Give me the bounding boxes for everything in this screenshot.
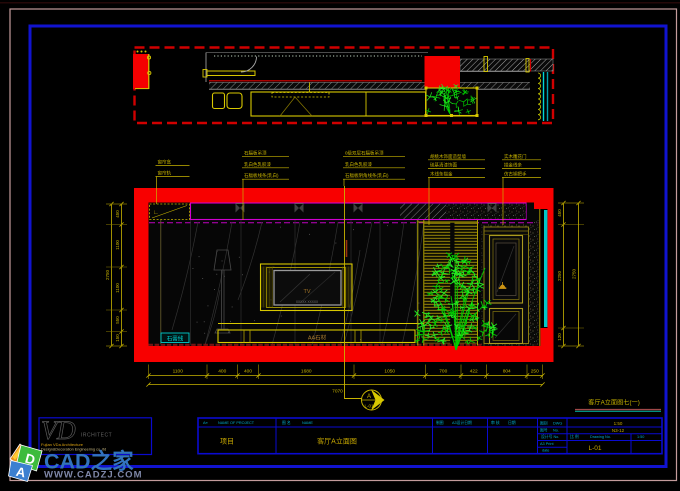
svg-text:450: 450 xyxy=(115,210,120,218)
svg-text:0级双层石腷板吊顶: 0级双层石腷板吊顶 xyxy=(345,149,384,156)
svg-text:石腷板线条(乳白): 石腷板线条(乳白) xyxy=(244,172,279,179)
svg-text:1100: 1100 xyxy=(173,369,184,375)
svg-text:1100: 1100 xyxy=(115,283,120,293)
svg-text:A: A xyxy=(367,394,371,400)
svg-text:DWG: DWG xyxy=(553,422,562,426)
svg-text:A≡: A≡ xyxy=(203,421,209,425)
svg-text:date: date xyxy=(542,449,549,453)
svg-text:客厅A立面图: 客厅A立面图 xyxy=(317,437,357,446)
svg-text:日期: 日期 xyxy=(508,420,516,425)
svg-text:木线条描金: 木线条描金 xyxy=(430,171,453,178)
svg-text:∟: ∟ xyxy=(153,210,159,216)
svg-text:550: 550 xyxy=(115,316,120,324)
svg-text:硫基清漆饰面: 硫基清漆饰面 xyxy=(430,162,457,169)
svg-text:乳白色乳胶漆: 乳白色乳胶漆 xyxy=(244,161,271,168)
svg-text:AA石材: AA石材 xyxy=(308,334,327,342)
svg-text:1050: 1050 xyxy=(384,369,395,375)
svg-text:150: 150 xyxy=(115,334,120,342)
svg-text:1:50: 1:50 xyxy=(637,435,644,439)
svg-text:仿古铜把手: 仿古铜把手 xyxy=(504,171,527,178)
svg-text:250: 250 xyxy=(531,369,539,375)
svg-text:804: 804 xyxy=(503,369,511,375)
svg-text:图别: 图别 xyxy=(540,421,548,426)
svg-text:120: 120 xyxy=(557,333,562,341)
svg-text:描金线条: 描金线条 xyxy=(504,162,522,169)
svg-text:客厅A立面图七(一): 客厅A立面图七(一) xyxy=(588,399,640,407)
svg-text:图号: 图号 xyxy=(540,427,548,432)
svg-text:项目: 项目 xyxy=(220,438,234,446)
svg-text:实木雕花门: 实木雕花门 xyxy=(504,153,527,160)
svg-text:IRCHITECT: IRCHITECT xyxy=(81,433,112,439)
svg-text:设计号 No.: 设计号 No. xyxy=(541,434,559,439)
svg-text:2250: 2250 xyxy=(557,270,562,281)
svg-text:1680: 1680 xyxy=(301,369,312,375)
svg-text:石膏线: 石膏线 xyxy=(167,335,184,343)
svg-text:石腷板吊顶: 石腷板吊顶 xyxy=(244,149,267,156)
svg-text:胡桃木饰面造型墙: 胡桃木饰面造型墙 xyxy=(430,153,466,160)
svg-text:400: 400 xyxy=(244,369,252,375)
svg-text:N3-12: N3-12 xyxy=(612,428,625,433)
svg-text:WWW.CADZJ.COM: WWW.CADZJ.COM xyxy=(44,470,143,481)
svg-text:450: 450 xyxy=(557,209,562,217)
svg-text:石腷板阴角线条(乳白): 石腷板阴角线条(乳白) xyxy=(345,172,389,179)
svg-text:图 名: 图 名 xyxy=(282,420,291,425)
svg-text:审 核: 审 核 xyxy=(491,420,500,425)
svg-text:制图: 制图 xyxy=(436,420,444,425)
svg-text:422: 422 xyxy=(470,369,478,375)
svg-text:No.: No. xyxy=(553,428,559,432)
svg-text:TV: TV xyxy=(303,289,310,295)
svg-text:NAME OF PROJECT: NAME OF PROJECT xyxy=(218,421,255,425)
svg-text:L-01: L-01 xyxy=(364,404,374,409)
svg-text:NAME: NAME xyxy=(302,421,313,425)
svg-text:7070: 7070 xyxy=(332,389,343,395)
svg-text:VD: VD xyxy=(41,416,76,445)
svg-text:2750: 2750 xyxy=(572,268,577,279)
svg-text:1100: 1100 xyxy=(115,240,120,250)
svg-text:2750: 2750 xyxy=(105,269,110,280)
svg-text:A3设计日期: A3设计日期 xyxy=(452,420,472,425)
svg-text:1:50: 1:50 xyxy=(614,421,623,426)
svg-text:窗帘盒: 窗帘盒 xyxy=(158,159,172,166)
svg-text:窗帘轨: 窗帘轨 xyxy=(158,170,172,177)
svg-text:Fujian VDa Architecture: Fujian VDa Architecture xyxy=(41,442,84,447)
svg-text:700: 700 xyxy=(439,369,447,375)
svg-text:Drawing No.: Drawing No. xyxy=(590,435,611,439)
svg-text:乳白色乳胶漆: 乳白色乳胶漆 xyxy=(345,161,372,168)
svg-text:400: 400 xyxy=(218,369,226,375)
svg-text:A3 Print: A3 Print xyxy=(540,442,554,446)
svg-text:XXXXX XXXXX: XXXXX XXXXX xyxy=(296,300,319,304)
svg-text:比 例: 比 例 xyxy=(570,434,579,439)
svg-text:L-01: L-01 xyxy=(588,445,601,452)
